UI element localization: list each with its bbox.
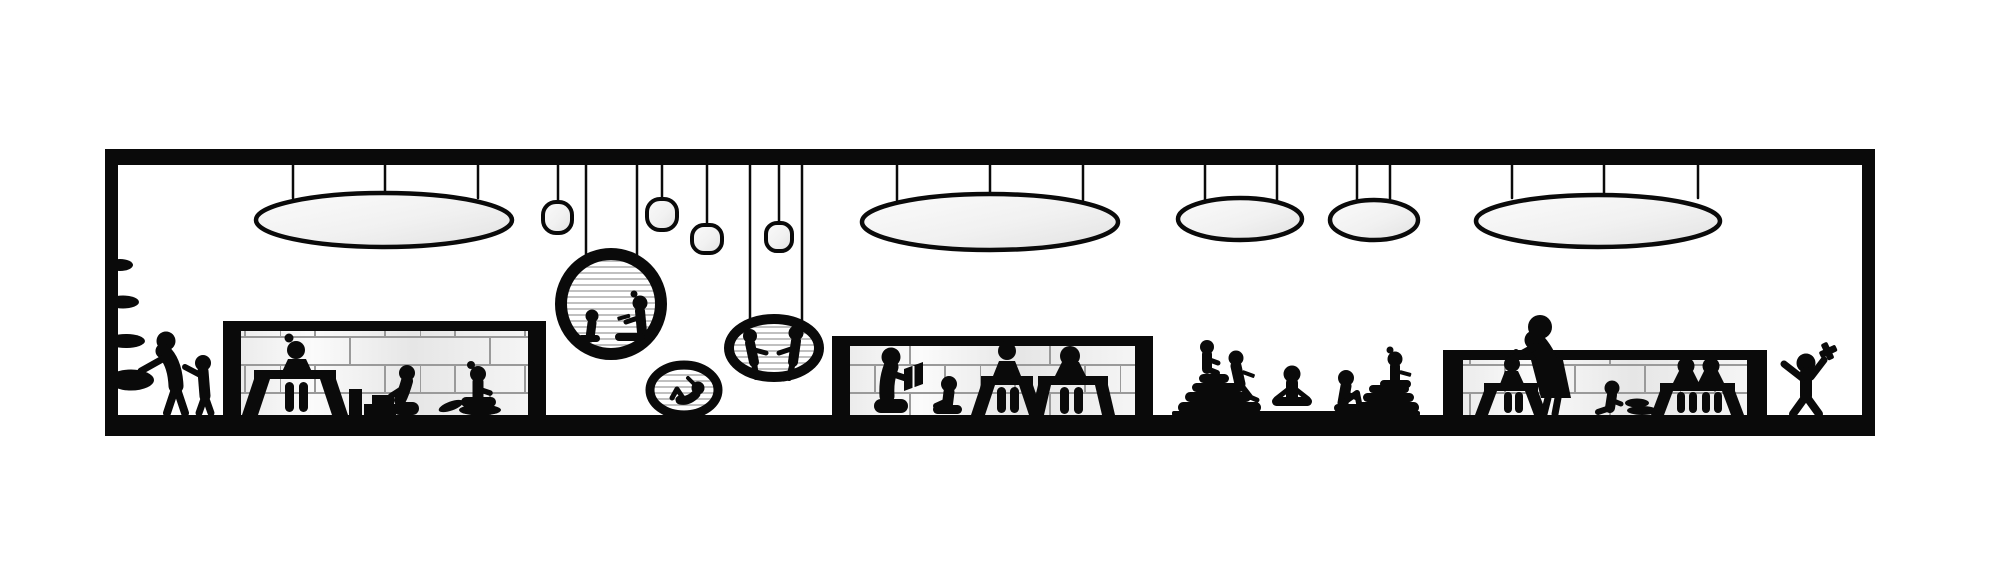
wall-shelf-1 (107, 259, 133, 271)
pendant-lamp-large-1 (256, 165, 512, 247)
wall-shelf-3 (107, 334, 145, 348)
floor-slab (105, 415, 1875, 436)
ceiling-lamps (256, 165, 1720, 253)
toy-hammer (1816, 339, 1840, 363)
unit3-right-post (1747, 350, 1767, 415)
desk-unit-3 (1443, 315, 1767, 415)
pendant-lamp-small-1 (543, 165, 572, 233)
unit1-right-post (528, 321, 546, 415)
cushion-pyramid-2 (1357, 385, 1419, 413)
floor-cushion-area (1172, 340, 1420, 416)
person-child-celebrating (1784, 339, 1840, 414)
desk-unit-1 (223, 321, 546, 416)
pendant-lamp-small-3 (692, 165, 722, 253)
person-adult-reaching (141, 332, 185, 414)
pendant-lamp-large-2 (862, 165, 1118, 250)
left-wall (105, 149, 118, 436)
hanging-pods (561, 165, 819, 415)
unit2-top (832, 336, 1153, 346)
unit1-left-post (223, 321, 241, 415)
pendant-lamp-small-4 (766, 165, 792, 251)
pod-medium (729, 165, 819, 378)
person-child-meditating (1272, 366, 1312, 407)
unit3-left-post (1443, 350, 1463, 415)
unit2-right-post (1135, 336, 1153, 415)
unit1-top (223, 321, 546, 331)
wall-shelf-2 (107, 296, 139, 309)
unit2-left-post (832, 336, 850, 415)
wall-pouf (108, 370, 154, 391)
desk-unit-2 (832, 336, 1153, 415)
pendant-lamp-small-2 (647, 165, 677, 230)
pendant-lamp-medium-1 (1178, 165, 1302, 240)
pod-small (650, 365, 718, 415)
pendant-lamp-medium-2 (1330, 165, 1418, 240)
pendant-lamp-large-3 (1476, 165, 1720, 247)
ceiling-slab (105, 149, 1875, 165)
pod-large (561, 165, 661, 354)
section-svg (0, 0, 2000, 581)
section-drawing (0, 0, 2000, 581)
person-child-pyramid2 (1380, 347, 1412, 389)
unit3-top (1443, 350, 1767, 360)
right-wall (1862, 149, 1875, 436)
person-child-pyramid-top (1200, 340, 1218, 373)
person-child-pointing (185, 355, 211, 413)
